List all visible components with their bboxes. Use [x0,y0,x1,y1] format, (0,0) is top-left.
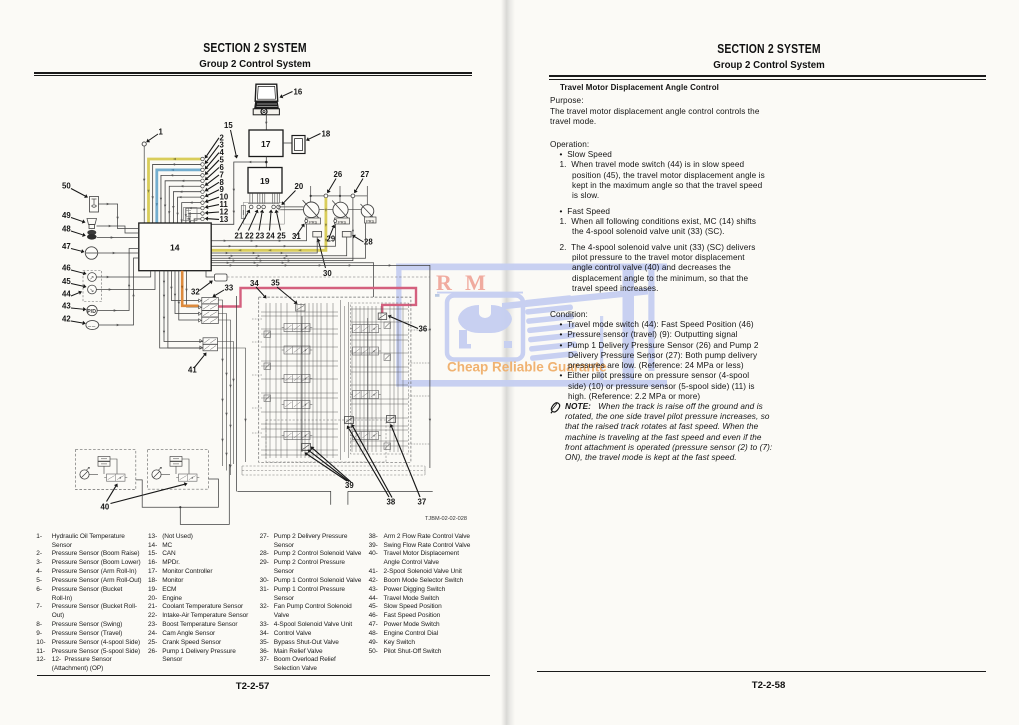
svg-text:↗: ↗ [90,276,95,282]
svg-text:38: 38 [387,498,396,507]
svg-text:34: 34 [250,279,259,288]
svg-text:50: 50 [62,182,71,191]
svg-text:42: 42 [62,315,71,324]
svg-text:14: 14 [170,243,180,253]
svg-text:48: 48 [62,225,71,234]
svg-text:49: 49 [62,211,71,220]
svg-text:33: 33 [225,284,234,293]
svg-text:45: 45 [62,277,71,286]
svg-text:TJBM-02-02-028: TJBM-02-02-028 [425,516,467,522]
svg-text:↘: ↘ [90,288,95,294]
svg-text:44: 44 [62,290,71,299]
svg-text:46: 46 [62,264,71,273]
svg-text:P/D: P/D [87,309,96,315]
svg-text:13: 13 [220,215,229,224]
svg-text:37: 37 [418,498,427,507]
svg-text:26: 26 [334,170,343,179]
svg-text:21: 21 [235,232,244,241]
svg-text:39: 39 [345,481,354,490]
svg-text:1: 1 [159,128,164,137]
svg-text:47: 47 [62,242,71,251]
svg-text:35: 35 [271,279,280,288]
svg-text:⚊⚊: ⚊⚊ [88,323,97,328]
svg-text:18: 18 [322,130,331,139]
svg-text:43: 43 [62,302,71,311]
svg-text:40: 40 [101,503,110,512]
svg-text:PRS: PRS [309,219,318,224]
svg-text:30: 30 [323,269,332,278]
svg-text:27: 27 [361,170,370,179]
svg-text:PRS: PRS [366,218,375,223]
svg-text:41: 41 [188,366,197,375]
svg-text:36: 36 [419,325,428,334]
svg-text:15: 15 [224,121,233,130]
svg-text:22: 22 [245,232,254,241]
svg-text:32: 32 [191,288,200,297]
svg-text:31: 31 [292,232,301,241]
svg-text:PRS: PRS [338,219,347,224]
svg-text:24: 24 [266,232,275,241]
svg-text:29: 29 [327,235,336,244]
svg-text:23: 23 [256,232,265,241]
svg-text:19: 19 [260,176,270,186]
svg-text:20: 20 [295,182,304,191]
svg-text:25: 25 [277,232,286,241]
svg-text:16: 16 [294,88,303,97]
svg-text:17: 17 [261,139,271,149]
